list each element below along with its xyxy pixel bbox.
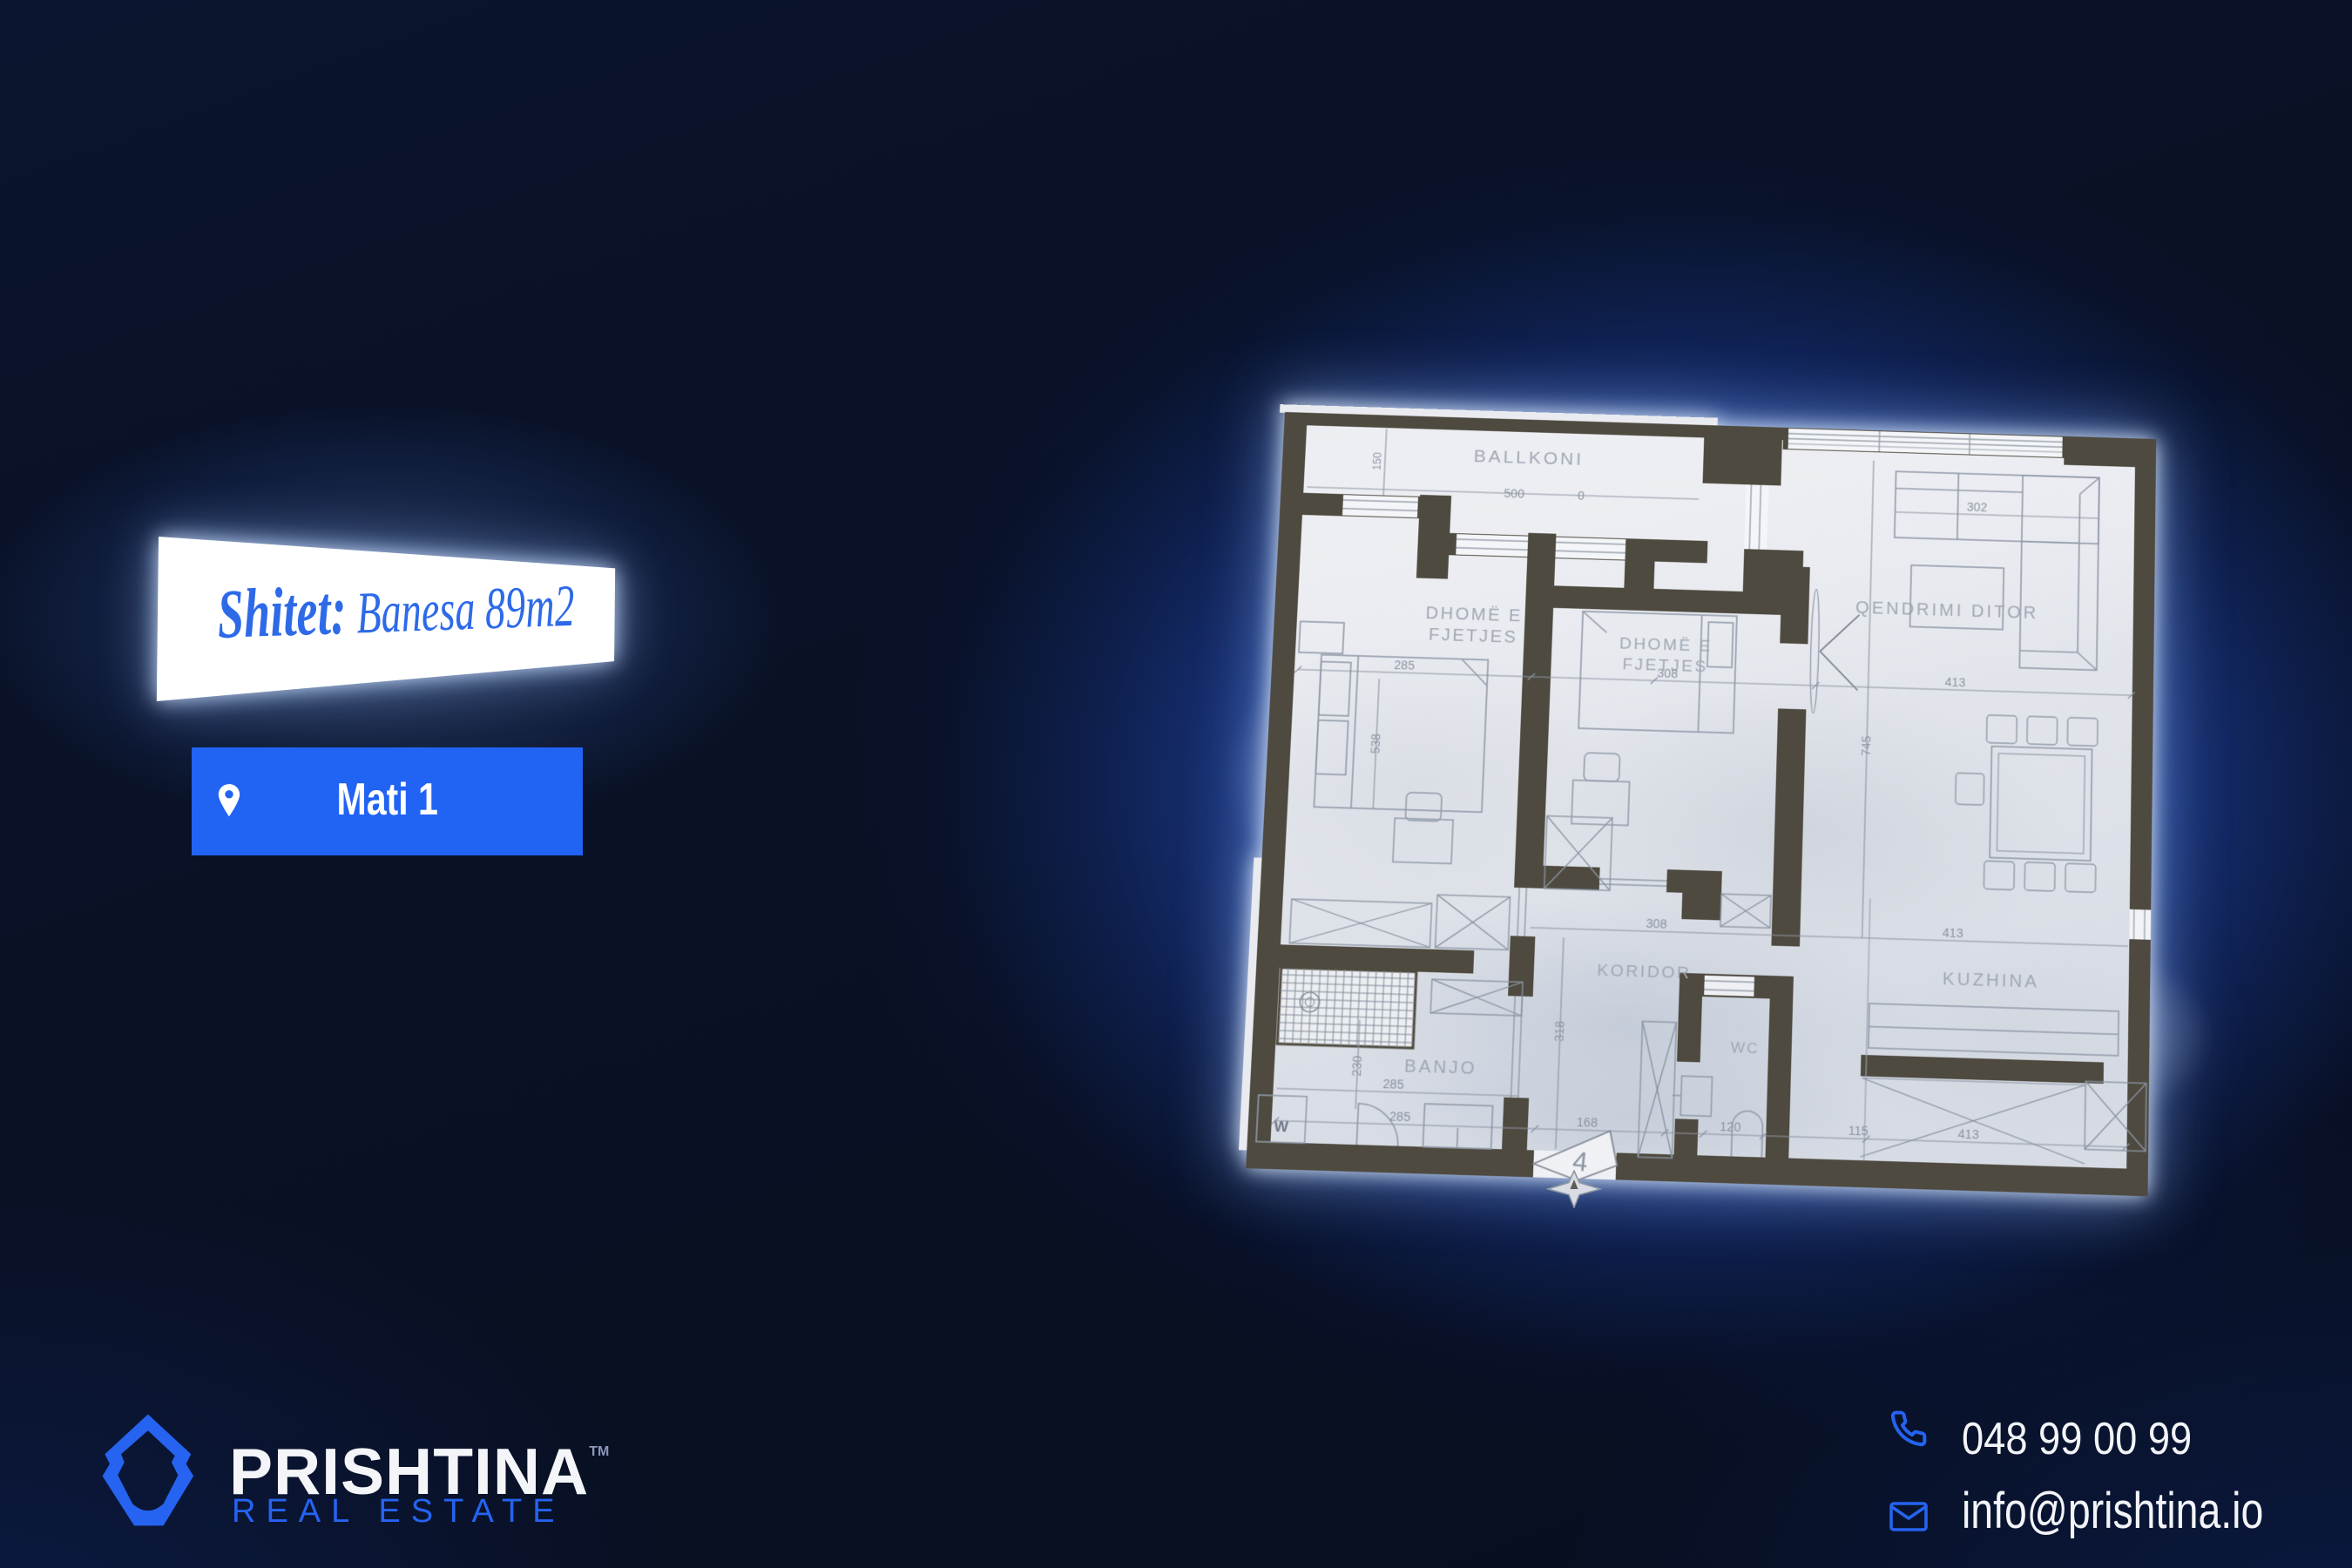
svg-text:BALLKONI: BALLKONI [1473, 446, 1584, 470]
svg-text:308: 308 [1646, 916, 1666, 930]
svg-text:500: 500 [1504, 487, 1524, 501]
svg-text:318: 318 [1552, 1021, 1567, 1042]
svg-text:230: 230 [1349, 1055, 1364, 1077]
svg-text:WC: WC [1731, 1039, 1761, 1058]
svg-text:413: 413 [1958, 1127, 1979, 1142]
svg-text:DHOMË E: DHOMË E [1425, 604, 1523, 626]
svg-text:308: 308 [1657, 666, 1678, 680]
svg-text:150: 150 [1370, 452, 1383, 470]
svg-text:DHOMË E: DHOMË E [1619, 633, 1713, 655]
svg-text:413: 413 [1945, 675, 1966, 689]
svg-text:285: 285 [1382, 1078, 1404, 1092]
svg-text:168: 168 [1577, 1115, 1598, 1130]
svg-text:FJETJES: FJETJES [1429, 625, 1518, 647]
svg-text:KORIDOR: KORIDOR [1597, 960, 1692, 982]
svg-text:302: 302 [1967, 500, 1988, 514]
svg-text:0: 0 [1578, 490, 1585, 503]
svg-text:285: 285 [1394, 659, 1415, 672]
svg-text:285: 285 [1389, 1110, 1411, 1125]
svg-text:KUZHINA: KUZHINA [1943, 970, 2039, 992]
svg-text:413: 413 [1943, 926, 1963, 940]
svg-text:120: 120 [1720, 1120, 1741, 1135]
svg-text:538: 538 [1369, 733, 1383, 754]
svg-text:745: 745 [1859, 735, 1873, 756]
svg-text:115: 115 [1848, 1124, 1869, 1139]
svg-text:BANJO: BANJO [1403, 1057, 1477, 1079]
